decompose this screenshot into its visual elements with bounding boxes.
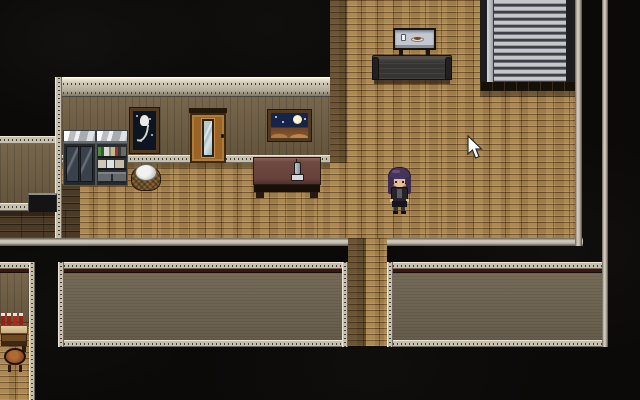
wooden-door[interactable] [189, 108, 227, 163]
desk-top [253, 157, 321, 185]
game-viewport [0, 0, 640, 400]
stool-leg-right [19, 365, 22, 372]
trim-right-room-top [393, 262, 602, 269]
floor-west-room-edge [62, 184, 80, 210]
bottle-table[interactable] [0, 313, 28, 352]
bottle-caps [1, 313, 25, 316]
bookshelf-boxes-row [98, 160, 126, 170]
floor-edge-east [575, 0, 582, 246]
trim-sw-room-right [29, 262, 35, 400]
office-desk[interactable] [253, 157, 321, 198]
tulip-painting[interactable] [130, 108, 159, 153]
shutter-post-right [566, 0, 575, 82]
painting-dunes [271, 128, 308, 138]
telephone[interactable] [291, 159, 305, 182]
glass-display-cabinet[interactable] [63, 130, 96, 186]
player-shirt [397, 189, 402, 198]
shutter-threshold [480, 82, 575, 91]
sofa-body [372, 55, 452, 80]
cursor-arrow-icon [467, 135, 485, 161]
shutter-post-left [480, 0, 487, 82]
wall-trim-main-left [55, 77, 62, 243]
trim-sw-room-top [0, 262, 29, 269]
wall-mid-room [64, 273, 342, 340]
crown-molding-main [55, 77, 330, 97]
shadow-upper-right-edge [330, 0, 347, 163]
round-stool[interactable] [4, 348, 26, 373]
baseboard-right-room [393, 340, 602, 347]
mouse-cursor [467, 135, 485, 161]
bookshelf-drawers-row [98, 172, 126, 183]
player-character[interactable] [386, 167, 413, 214]
sofa-bench[interactable] [372, 55, 452, 84]
wall-display-case[interactable] [393, 28, 436, 56]
player-shoes [393, 211, 406, 214]
cabinet-glass-right [80, 146, 93, 182]
trim-mid-room-right [342, 262, 348, 347]
door-knob [221, 134, 224, 138]
bookshelf-books-row [98, 147, 126, 158]
player-eyes [395, 181, 404, 183]
bookshelf[interactable] [96, 130, 128, 186]
desk-leg-right [310, 192, 318, 198]
cabinet-glass-left [66, 146, 79, 182]
table-top [0, 325, 28, 334]
stool-leg-left [8, 365, 11, 372]
floor-edge-south-east [387, 238, 583, 246]
cabinet-metal-top [63, 130, 96, 143]
basket-cloth [135, 164, 157, 181]
wall-top-west-room [0, 136, 55, 144]
shutter-rail [487, 0, 494, 82]
shadow-corridor-left [348, 238, 366, 346]
trim-mid-room-top [64, 262, 342, 269]
bookshelf-metal-top [96, 130, 128, 143]
player-hair-shine [392, 170, 400, 173]
sofa-armrest-left [372, 57, 379, 80]
shutter-slats [494, 0, 566, 82]
baseboard-mid-room [64, 340, 342, 347]
night-sky-painting[interactable] [268, 110, 311, 141]
desk-leg-left [256, 192, 264, 198]
painting-stars [271, 113, 308, 127]
case-food [414, 37, 421, 40]
case-cup [401, 34, 406, 41]
stool-seat [4, 348, 26, 365]
shadow-under-shutter [480, 91, 575, 97]
phone-base [291, 174, 304, 181]
sofa-shadow [374, 80, 450, 84]
table-apron [1, 334, 27, 346]
dark-counter[interactable] [28, 193, 57, 212]
east-wall-line [602, 0, 608, 347]
door-glass [202, 119, 214, 157]
sofa-armrest-right [445, 57, 452, 80]
laundry-basket[interactable] [131, 162, 161, 192]
desk-underside [254, 185, 320, 192]
roller-shutter[interactable] [480, 0, 575, 91]
wall-right-room [393, 273, 602, 340]
floor-edge-south-west [0, 238, 348, 246]
